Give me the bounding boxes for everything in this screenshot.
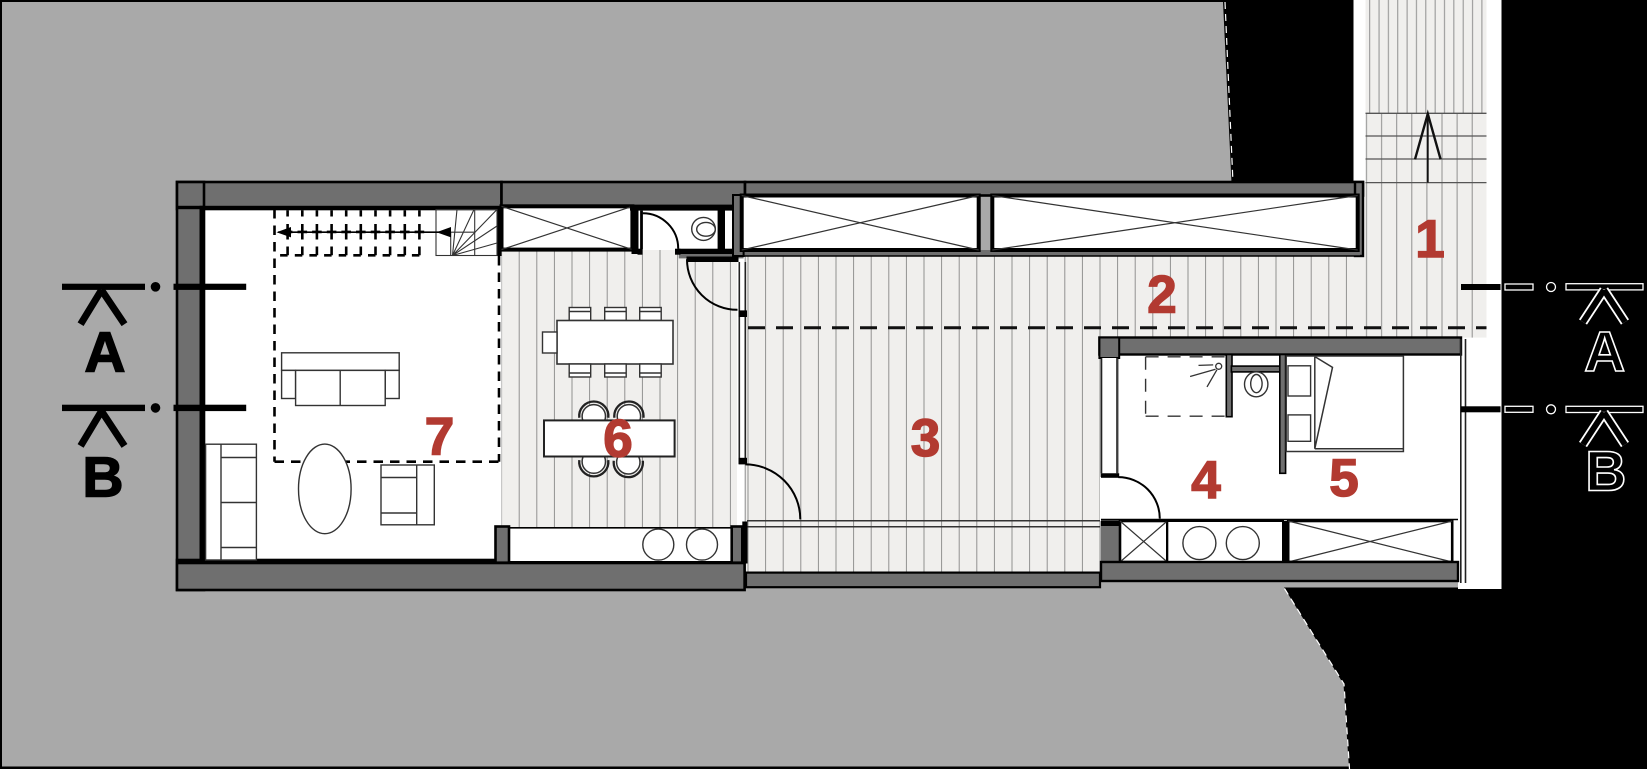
svg-text:3: 3: [911, 409, 940, 468]
svg-text:7: 7: [425, 408, 454, 467]
svg-text:B: B: [1585, 440, 1626, 504]
svg-text:2: 2: [1147, 266, 1176, 325]
svg-text:4: 4: [1191, 451, 1221, 510]
svg-text:A: A: [84, 321, 125, 385]
svg-text:5: 5: [1329, 449, 1358, 508]
svg-text:A: A: [1584, 320, 1625, 384]
svg-text:6: 6: [603, 410, 632, 469]
svg-text:1: 1: [1415, 210, 1444, 269]
svg-text:B: B: [82, 446, 123, 510]
